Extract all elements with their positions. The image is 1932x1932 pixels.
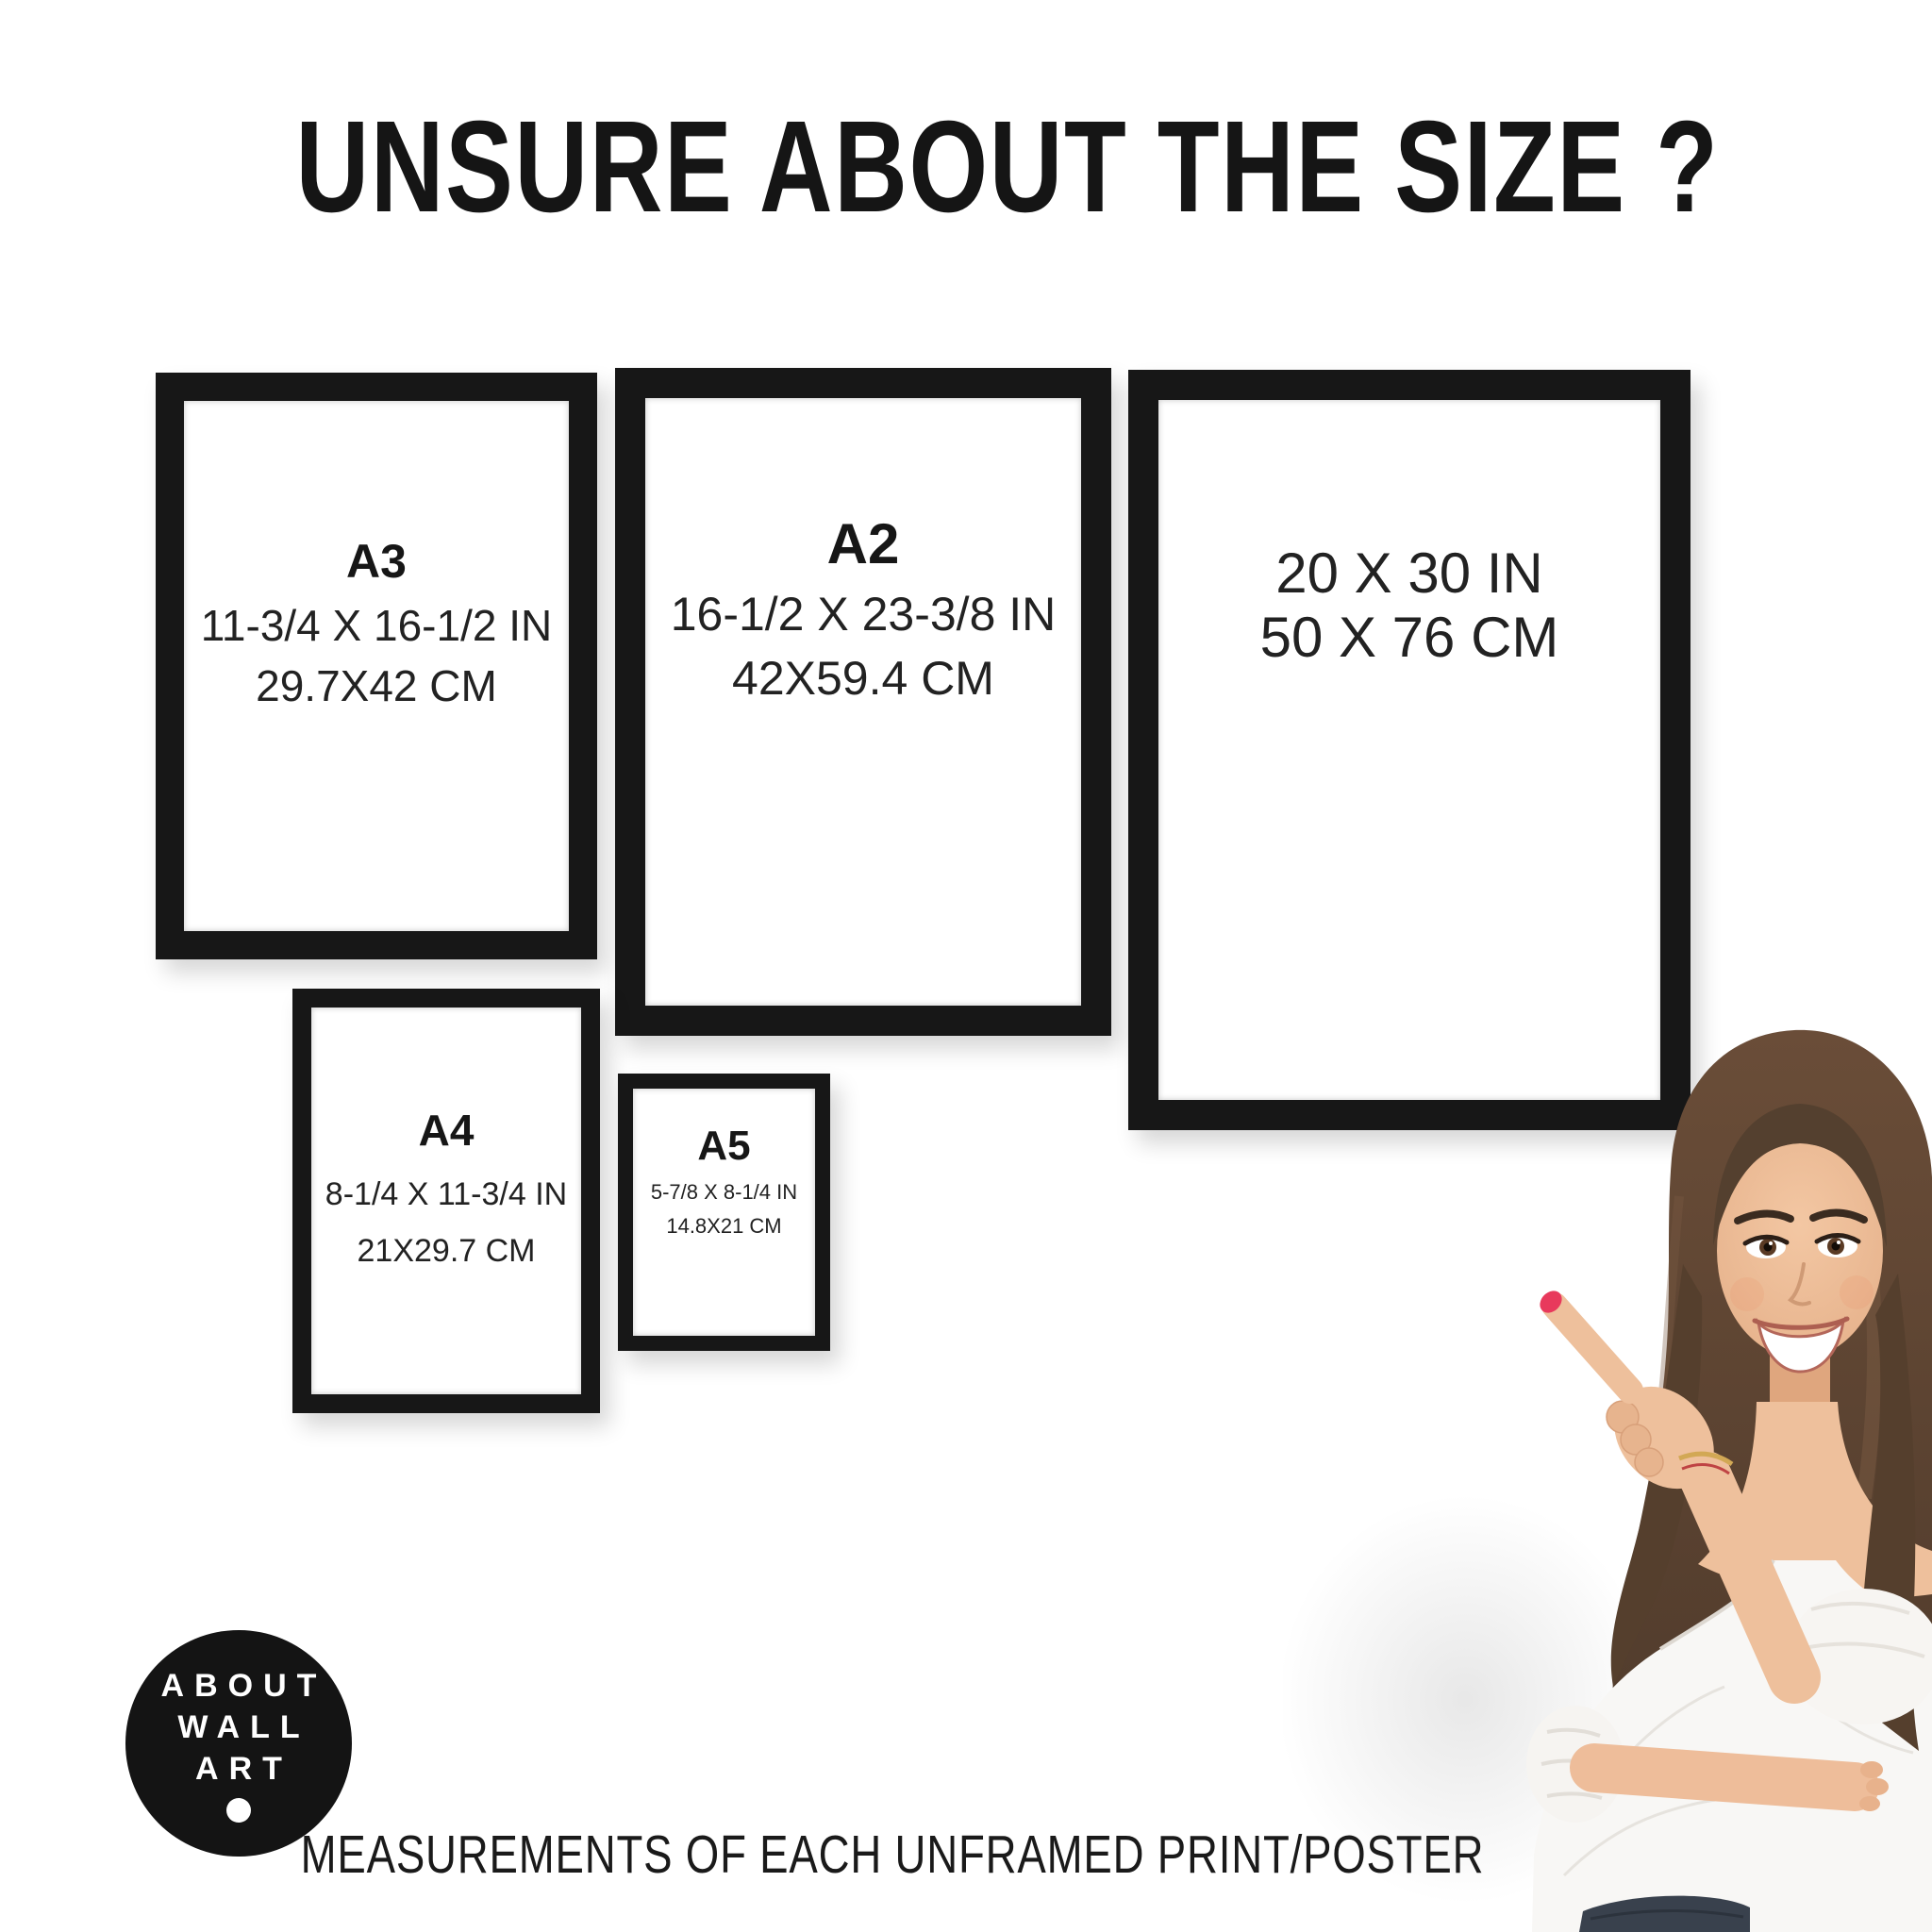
frame-a3-print: A3 11-3/4 X 16-1/2 IN 29.7X42 CM xyxy=(184,401,569,931)
frame-a2-print: A2 16-1/2 X 23-3/8 IN 42X59.4 CM xyxy=(645,398,1081,1006)
frame-a2-cm: 42X59.4 CM xyxy=(732,646,994,710)
frame-20x30-inches: 20 X 30 IN xyxy=(1275,541,1543,606)
frame-a5: A5 5-7/8 X 8-1/4 IN 14.8X21 CM xyxy=(618,1074,830,1351)
frame-a3: A3 11-3/4 X 16-1/2 IN 29.7X42 CM xyxy=(156,373,597,959)
frame-a3-cm: 29.7X42 CM xyxy=(256,656,497,716)
frame-a2: A2 16-1/2 X 23-3/8 IN 42X59.4 CM xyxy=(615,368,1111,1036)
frame-a5-print: A5 5-7/8 X 8-1/4 IN 14.8X21 CM xyxy=(633,1089,815,1336)
logo-line-art: ART xyxy=(185,1748,292,1790)
frame-20x30-cm: 50 X 76 CM xyxy=(1260,606,1559,670)
frame-a2-inches: 16-1/2 X 23-3/8 IN xyxy=(671,582,1057,646)
frame-a5-name: A5 xyxy=(697,1123,750,1171)
frame-a4-print: A4 8-1/4 X 11-3/4 IN 21X29.7 CM xyxy=(311,1008,581,1394)
frame-a3-inches: 11-3/4 X 16-1/2 IN xyxy=(201,595,552,656)
frame-a5-inches: 5-7/8 X 8-1/4 IN xyxy=(651,1182,797,1203)
logo-line-about: ABOUT xyxy=(151,1665,327,1707)
logo-line-wall: WALL xyxy=(167,1707,309,1748)
brand-logo: ABOUT WALL ART xyxy=(125,1630,352,1857)
poster-size-guide: UNSURE ABOUT THE SIZE ? A3 11-3/4 X 16-1… xyxy=(0,0,1932,1932)
frame-a4-cm: 21X29.7 CM xyxy=(358,1235,536,1267)
frame-a4-name: A4 xyxy=(419,1106,475,1156)
page-title: UNSURE ABOUT THE SIZE ? xyxy=(95,102,1921,232)
page-title-text: UNSURE ABOUT THE SIZE ? xyxy=(296,102,1720,232)
frame-20x30-print: 20 X 30 IN 50 X 76 CM xyxy=(1158,400,1660,1100)
frame-a2-name: A2 xyxy=(827,511,900,576)
frame-a3-name: A3 xyxy=(346,535,407,590)
frame-a5-cm: 14.8X21 CM xyxy=(666,1216,781,1237)
frame-20x30: 20 X 30 IN 50 X 76 CM xyxy=(1128,370,1690,1130)
logo-dot-icon xyxy=(226,1798,251,1823)
woman-photo xyxy=(1347,1026,1932,1932)
frame-a4: A4 8-1/4 X 11-3/4 IN 21X29.7 CM xyxy=(292,989,600,1413)
frame-a4-inches: 8-1/4 X 11-3/4 IN xyxy=(325,1178,567,1210)
